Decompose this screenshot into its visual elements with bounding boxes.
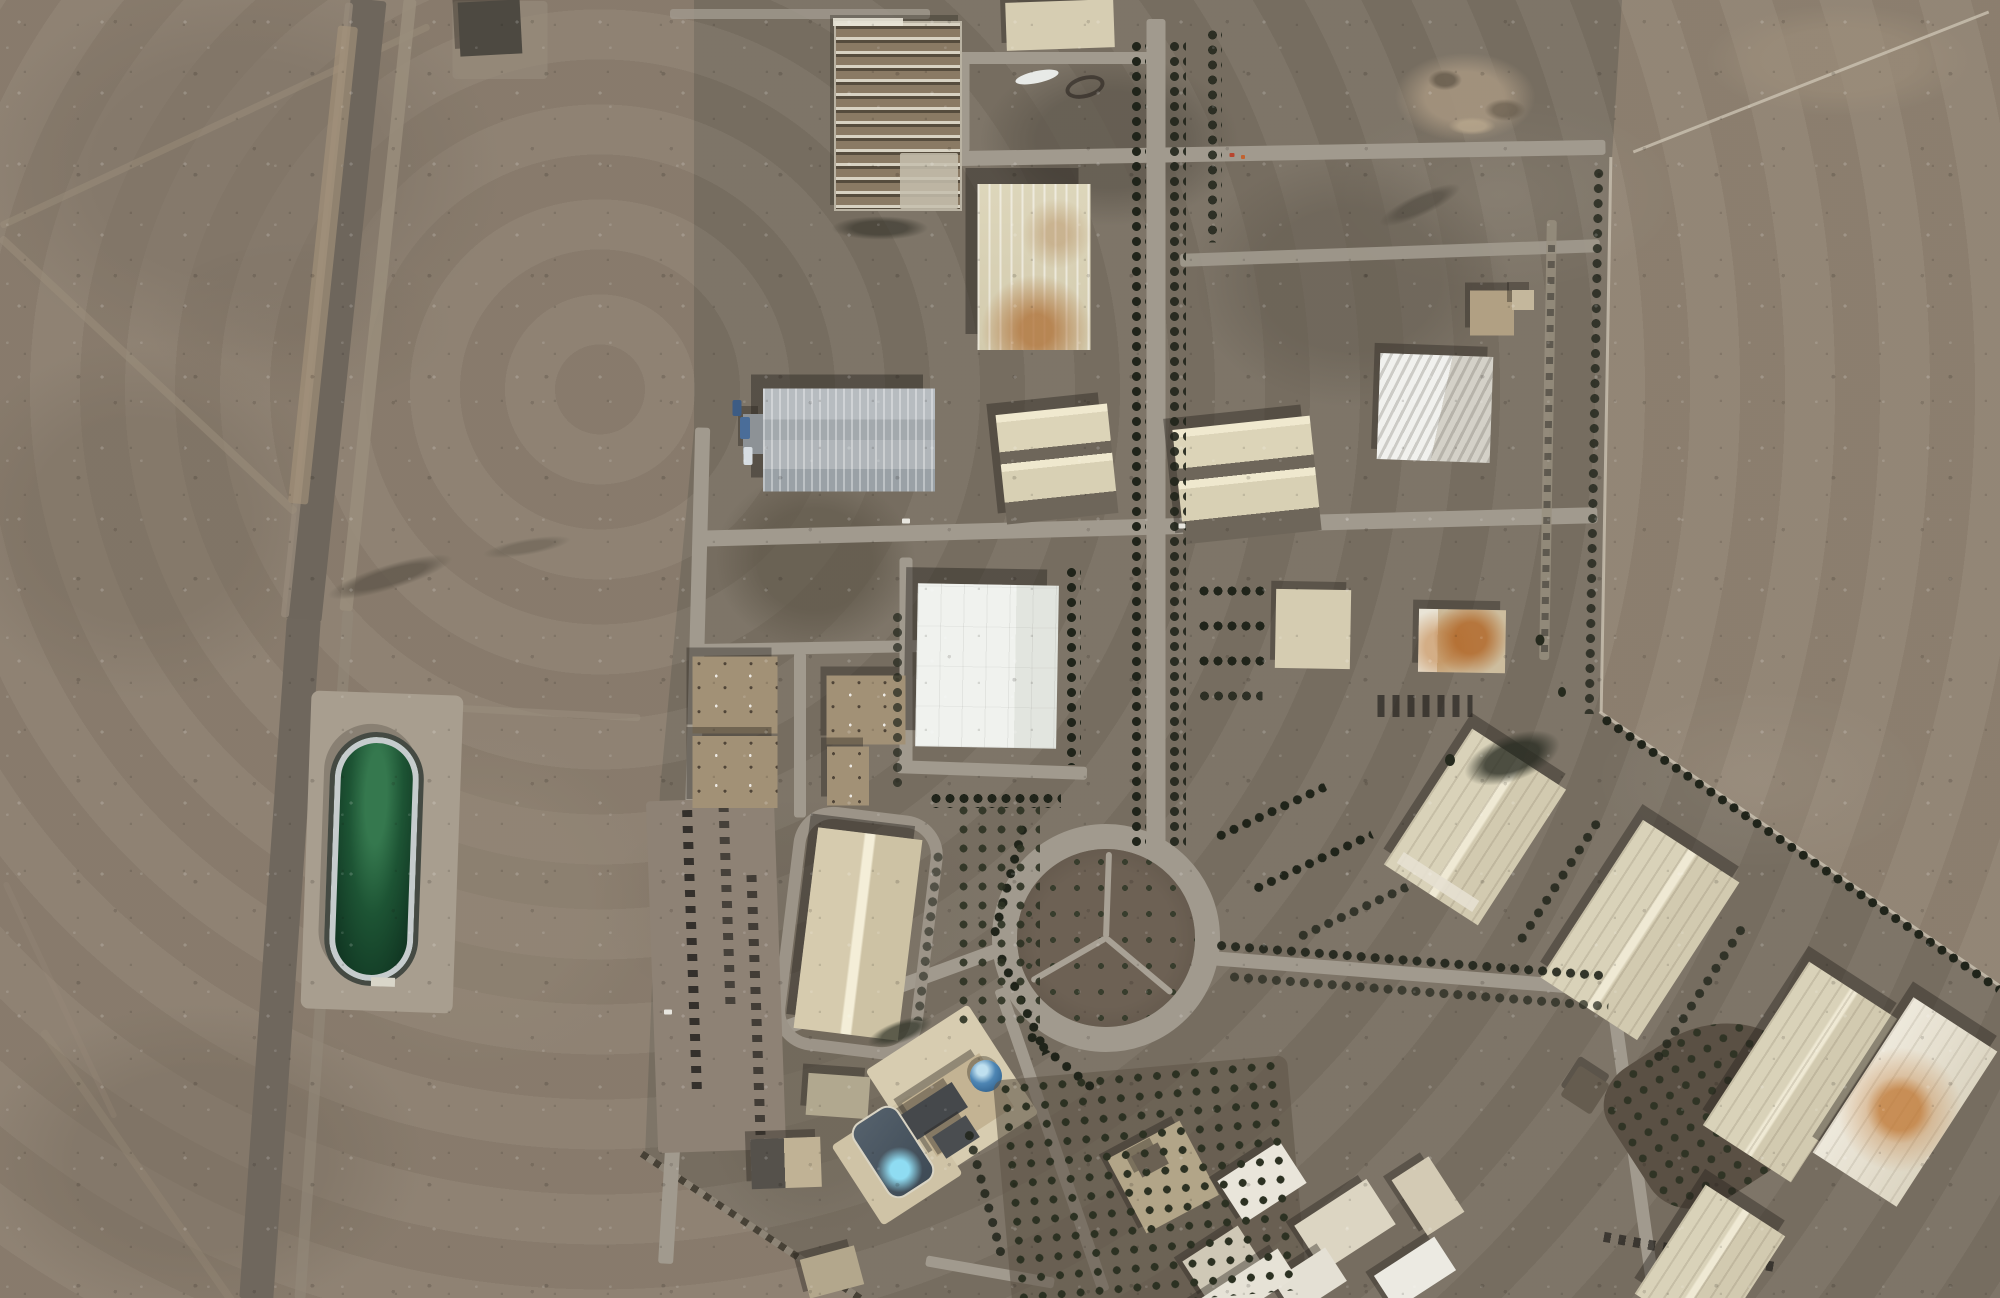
road-avenue bbox=[1147, 19, 1166, 851]
reservoir-steps bbox=[371, 977, 395, 987]
sand-pile-dark-1 bbox=[1422, 66, 1468, 94]
warehouse-north bbox=[1005, 0, 1115, 51]
warehouse-striped bbox=[978, 184, 1091, 350]
truck-white bbox=[744, 447, 753, 465]
hedge-northeast-1 bbox=[1197, 585, 1267, 596]
barracks-2 bbox=[693, 736, 778, 808]
construction-pad bbox=[900, 153, 958, 209]
hedge-northeast-3 bbox=[1197, 655, 1267, 666]
parking-west bbox=[646, 797, 786, 1153]
building-twin-gable-west bbox=[996, 403, 1119, 524]
building-two-tone bbox=[750, 1137, 822, 1189]
barracks-1 bbox=[693, 657, 778, 734]
building-cream-mid bbox=[1275, 589, 1351, 669]
tree-single-3 bbox=[1558, 687, 1566, 697]
trees-white-east bbox=[1065, 565, 1081, 765]
building-damaged-white bbox=[1377, 353, 1494, 463]
orchard-south bbox=[995, 1055, 1304, 1298]
trees-avenue-north-extra bbox=[1206, 28, 1222, 243]
construction-edge bbox=[833, 18, 903, 26]
hedge-northeast-4 bbox=[1198, 690, 1263, 701]
building-twin-gable-east bbox=[1172, 416, 1321, 545]
satellite-image bbox=[0, 0, 2000, 1298]
trees-white-west bbox=[891, 610, 903, 790]
reservoir bbox=[323, 730, 426, 987]
orchard-west-roundabout bbox=[954, 801, 1040, 1033]
barracks-4 bbox=[827, 747, 869, 806]
building-rust-stained bbox=[1418, 609, 1506, 674]
tree-single-1 bbox=[1445, 754, 1455, 766]
truck-blue-1 bbox=[740, 417, 750, 439]
road-barracks-mid bbox=[794, 653, 806, 818]
truck-blue-2 bbox=[733, 400, 742, 416]
parked-cars-northeast bbox=[1378, 695, 1473, 717]
building-flat-dotted bbox=[806, 1073, 871, 1119]
tan-cube-buildings bbox=[1470, 291, 1514, 336]
tan-cube-small bbox=[1512, 290, 1534, 310]
north-dark-building bbox=[458, 0, 523, 57]
trees-avenue-west bbox=[1130, 39, 1146, 851]
car-white-3 bbox=[664, 1010, 672, 1015]
warehouse-metal-ribbed bbox=[763, 389, 935, 492]
building-large-white bbox=[915, 583, 1059, 748]
red-vehicle-1 bbox=[1230, 153, 1235, 157]
car-white-2 bbox=[1179, 524, 1186, 529]
tree-single-2 bbox=[1536, 635, 1545, 646]
red-vehicle-2 bbox=[1241, 155, 1245, 159]
hedge-northeast-2 bbox=[1197, 620, 1267, 631]
car-white-1 bbox=[902, 519, 910, 524]
trees-construction-south bbox=[815, 212, 945, 244]
trees-avenue-east bbox=[1168, 39, 1186, 851]
